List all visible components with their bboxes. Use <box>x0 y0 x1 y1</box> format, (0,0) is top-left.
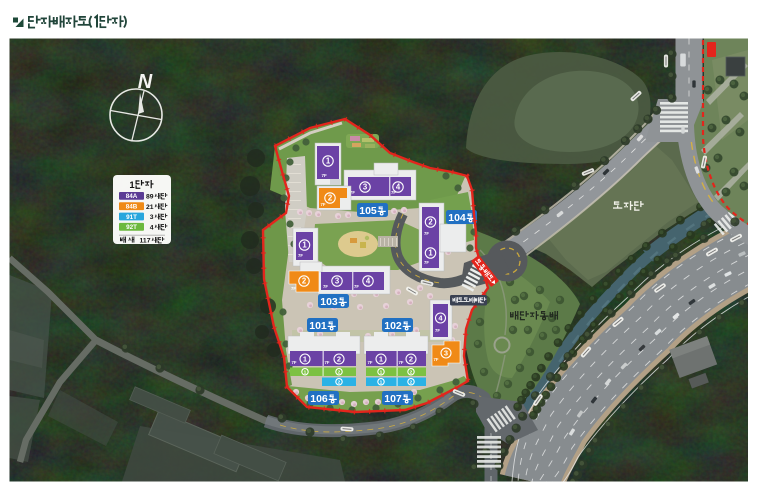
svg-text:21: 21 <box>146 204 154 211</box>
svg-text:3: 3 <box>150 214 154 221</box>
svg-text:2: 2 <box>328 194 333 203</box>
svg-text:1: 1 <box>380 369 383 375</box>
svg-text:7F: 7F <box>321 202 326 207</box>
svg-text:84B: 84B <box>126 204 138 211</box>
svg-text:4: 4 <box>366 277 371 286</box>
svg-text:1: 1 <box>129 180 135 191</box>
svg-text:7F: 7F <box>298 253 303 258</box>
svg-text:4: 4 <box>150 225 154 232</box>
svg-text:2: 2 <box>428 218 433 227</box>
svg-text:1: 1 <box>302 241 307 250</box>
svg-text:7F: 7F <box>399 360 404 365</box>
svg-text:104: 104 <box>448 212 466 224</box>
svg-text:2: 2 <box>337 355 341 364</box>
svg-text:2: 2 <box>410 369 413 375</box>
svg-text:2: 2 <box>338 379 341 385</box>
svg-text:92T: 92T <box>126 224 137 231</box>
svg-text:7F: 7F <box>424 260 429 265</box>
svg-text:7F: 7F <box>322 173 328 178</box>
svg-text:1: 1 <box>303 355 307 364</box>
svg-text:3: 3 <box>444 349 448 358</box>
svg-text:N: N <box>138 71 153 93</box>
svg-text:103: 103 <box>320 296 338 308</box>
svg-text:117: 117 <box>140 238 151 245</box>
svg-text:2: 2 <box>302 277 307 286</box>
svg-text:7F: 7F <box>435 328 440 333</box>
svg-text:7F: 7F <box>291 286 296 291</box>
svg-text:1: 1 <box>326 157 331 166</box>
svg-text:7F: 7F <box>292 360 297 365</box>
svg-text:107: 107 <box>384 393 402 405</box>
svg-text:4: 4 <box>396 183 401 192</box>
svg-text:105: 105 <box>359 205 377 217</box>
svg-text:7F: 7F <box>424 231 429 236</box>
svg-text:7F: 7F <box>391 190 396 195</box>
svg-text:7F: 7F <box>368 360 373 365</box>
svg-text:1: 1 <box>304 369 307 375</box>
svg-text:2: 2 <box>409 355 413 364</box>
svg-text:3: 3 <box>363 183 368 192</box>
svg-text:102: 102 <box>384 320 402 332</box>
svg-text:106: 106 <box>310 393 328 405</box>
svg-text:1: 1 <box>379 355 383 364</box>
svg-text:7F: 7F <box>354 284 359 289</box>
svg-text:101: 101 <box>309 320 327 332</box>
svg-text:91T: 91T <box>126 214 137 221</box>
svg-text:1: 1 <box>380 379 383 385</box>
svg-text:7F: 7F <box>434 357 439 362</box>
svg-text:84A: 84A <box>126 193 138 200</box>
svg-text:7F: 7F <box>323 284 328 289</box>
svg-text:7F: 7F <box>325 360 330 365</box>
svg-text:89: 89 <box>146 194 154 201</box>
svg-text:1: 1 <box>428 249 433 258</box>
svg-text:2: 2 <box>338 369 341 375</box>
svg-text:3: 3 <box>335 277 340 286</box>
svg-text:2: 2 <box>410 379 413 385</box>
